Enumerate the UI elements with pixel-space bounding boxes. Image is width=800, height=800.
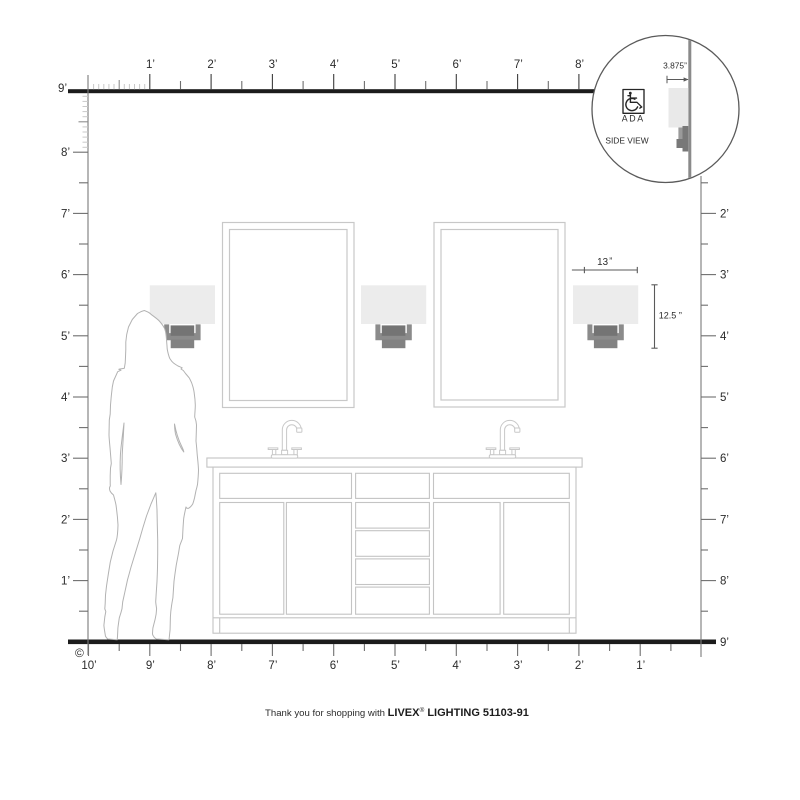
svg-text:1’: 1’ [146,59,155,71]
svg-text:3’: 3’ [514,660,523,672]
svg-text:3’: 3’ [61,453,70,465]
svg-text:5’: 5’ [61,331,70,343]
svg-text:4’: 4’ [452,660,461,672]
svg-text:SIDE VIEW: SIDE VIEW [605,135,648,145]
svg-text:5’: 5’ [391,59,400,71]
svg-text:6’: 6’ [330,660,339,672]
svg-text:8’: 8’ [720,576,729,588]
svg-text:Thank you for shopping with LI: Thank you for shopping with LIVEX® LIGHT… [265,706,529,719]
svg-text:7’: 7’ [514,59,523,71]
svg-text:ADA: ADA [622,113,645,123]
svg-text:1’: 1’ [61,576,70,588]
svg-text:2’: 2’ [61,514,70,526]
svg-text:6’: 6’ [453,59,462,71]
svg-text:1’: 1’ [636,660,645,672]
svg-text:7’: 7’ [268,660,277,672]
svg-text:6’: 6’ [720,453,729,465]
svg-text:4’: 4’ [61,392,70,404]
svg-text:3’: 3’ [720,270,729,282]
svg-text:12.5 ”: 12.5 ” [659,311,682,321]
svg-text:5’: 5’ [720,392,729,404]
svg-text:2’: 2’ [720,208,729,220]
svg-text:7’: 7’ [61,208,70,220]
svg-text:2’: 2’ [207,59,216,71]
svg-text:8’: 8’ [207,660,216,672]
svg-text:3.875”: 3.875” [663,61,687,71]
svg-text:9’: 9’ [58,83,67,95]
svg-text:4’: 4’ [720,331,729,343]
svg-text:8’: 8’ [61,147,70,159]
svg-text:”: ” [609,256,612,266]
svg-text:8’: 8’ [575,59,584,71]
svg-text:2’: 2’ [575,660,584,672]
svg-text:6’: 6’ [61,270,70,282]
svg-text:©: © [75,646,84,660]
svg-text:4’: 4’ [330,59,339,71]
svg-text:13: 13 [597,257,608,268]
svg-text:9’: 9’ [146,660,155,672]
svg-text:7’: 7’ [720,514,729,526]
svg-text:5’: 5’ [391,660,400,672]
svg-text:10’: 10’ [81,660,96,672]
svg-text:9’: 9’ [720,637,729,649]
svg-text:3’: 3’ [269,59,278,71]
